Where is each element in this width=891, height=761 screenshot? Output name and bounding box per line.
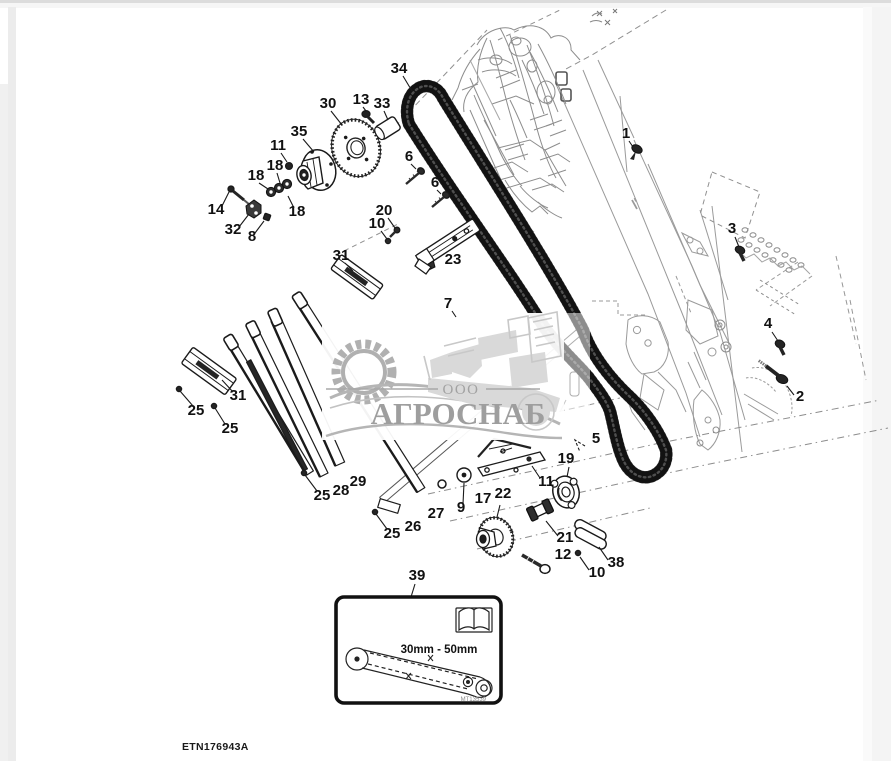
svg-text:19: 19: [558, 450, 575, 467]
svg-text:MT13539: MT13539: [461, 697, 487, 703]
svg-text:6: 6: [431, 174, 439, 191]
svg-text:32: 32: [225, 221, 242, 238]
svg-text:18: 18: [248, 167, 265, 184]
svg-text:30mm - 50mm: 30mm - 50mm: [401, 644, 478, 656]
svg-text:18: 18: [289, 203, 306, 220]
svg-text:27: 27: [428, 505, 445, 522]
svg-text:18: 18: [267, 157, 284, 174]
svg-text:7: 7: [444, 295, 452, 312]
svg-text:8: 8: [248, 228, 256, 245]
svg-text:1: 1: [622, 125, 630, 142]
svg-text:38: 38: [608, 554, 625, 571]
svg-text:31: 31: [230, 387, 247, 404]
svg-text:6: 6: [405, 148, 413, 165]
svg-text:10: 10: [369, 215, 386, 232]
svg-text:34: 34: [391, 60, 408, 77]
svg-text:17: 17: [475, 490, 492, 507]
svg-text:23: 23: [445, 251, 462, 268]
svg-text:2: 2: [796, 388, 804, 405]
svg-text:10: 10: [589, 564, 606, 581]
svg-text:33: 33: [374, 95, 391, 112]
svg-text:АГРОСНАБ: АГРОСНАБ: [371, 396, 546, 431]
svg-text:30: 30: [320, 95, 337, 112]
svg-text:3: 3: [728, 220, 736, 237]
svg-text:26: 26: [405, 518, 422, 535]
svg-text:14: 14: [208, 201, 225, 218]
svg-text:11: 11: [538, 473, 554, 490]
svg-text:12: 12: [555, 546, 572, 563]
svg-text:39: 39: [409, 567, 426, 584]
svg-text:25: 25: [188, 402, 205, 419]
svg-text:5: 5: [592, 430, 600, 447]
svg-text:31: 31: [333, 247, 350, 264]
svg-text:35: 35: [291, 123, 308, 140]
svg-text:11: 11: [270, 137, 286, 154]
svg-text:9: 9: [457, 499, 465, 516]
svg-text:ETN176943A: ETN176943A: [182, 741, 249, 753]
svg-text:13: 13: [353, 91, 370, 108]
svg-text:4: 4: [764, 315, 773, 332]
svg-text:28: 28: [333, 482, 350, 499]
svg-text:22: 22: [495, 485, 512, 502]
svg-text:29: 29: [350, 473, 367, 490]
svg-text:21: 21: [557, 529, 574, 546]
